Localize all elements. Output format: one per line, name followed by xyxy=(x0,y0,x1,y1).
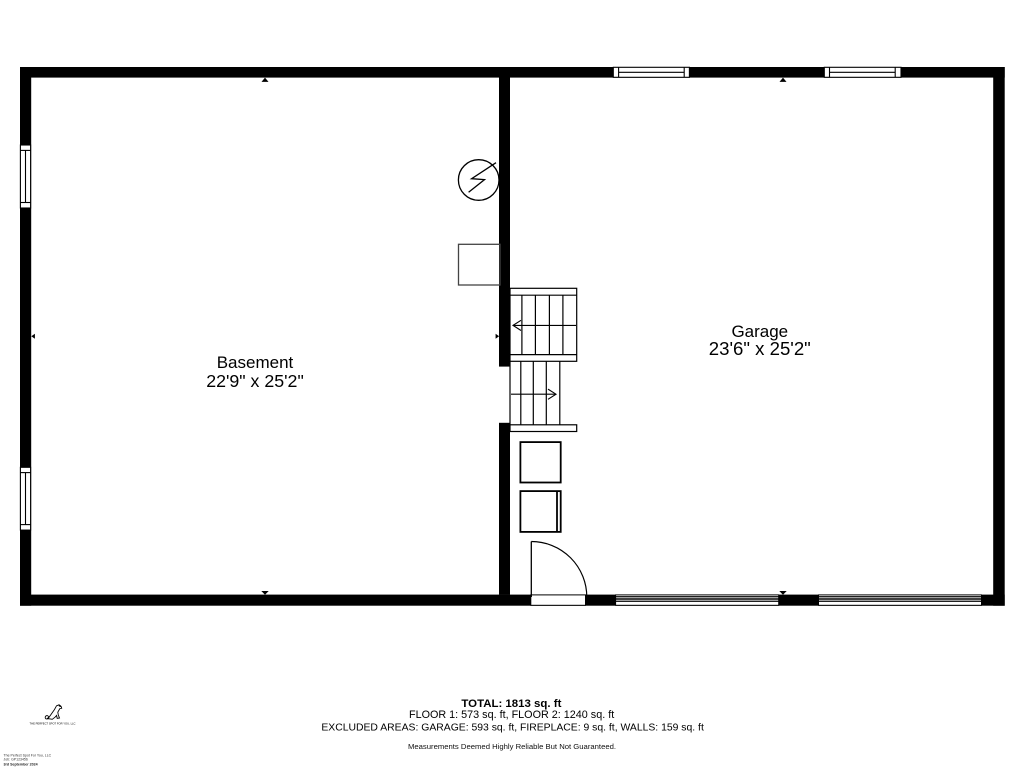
svg-text:Measurements Deemed Highly Rel: Measurements Deemed Highly Reliable But … xyxy=(408,742,616,751)
svg-text:3rd September 2024: 3rd September 2024 xyxy=(4,763,38,767)
svg-text:TOTAL: 1813 sq. ft: TOTAL: 1813 sq. ft xyxy=(461,698,561,710)
svg-text:Basement: Basement xyxy=(217,353,294,372)
svg-text:EXCLUDED AREAS: GARAGE: 593 sq: EXCLUDED AREAS: GARAGE: 593 sq. ft, FIRE… xyxy=(321,722,704,733)
svg-text:FLOOR 1: 573 sq. ft, FLOOR 2:: FLOOR 1: 573 sq. ft, FLOOR 2: 1240 sq. f… xyxy=(409,709,614,721)
svg-text:23'6" x 25'2": 23'6" x 25'2" xyxy=(709,338,811,359)
svg-text:THE PERFECT SPOT FOR YOU, LLC: THE PERFECT SPOT FOR YOU, LLC xyxy=(30,722,76,726)
svg-text:Job: GP123456: Job: GP123456 xyxy=(4,758,28,762)
svg-text:22'9" x 25'2": 22'9" x 25'2" xyxy=(206,371,304,391)
